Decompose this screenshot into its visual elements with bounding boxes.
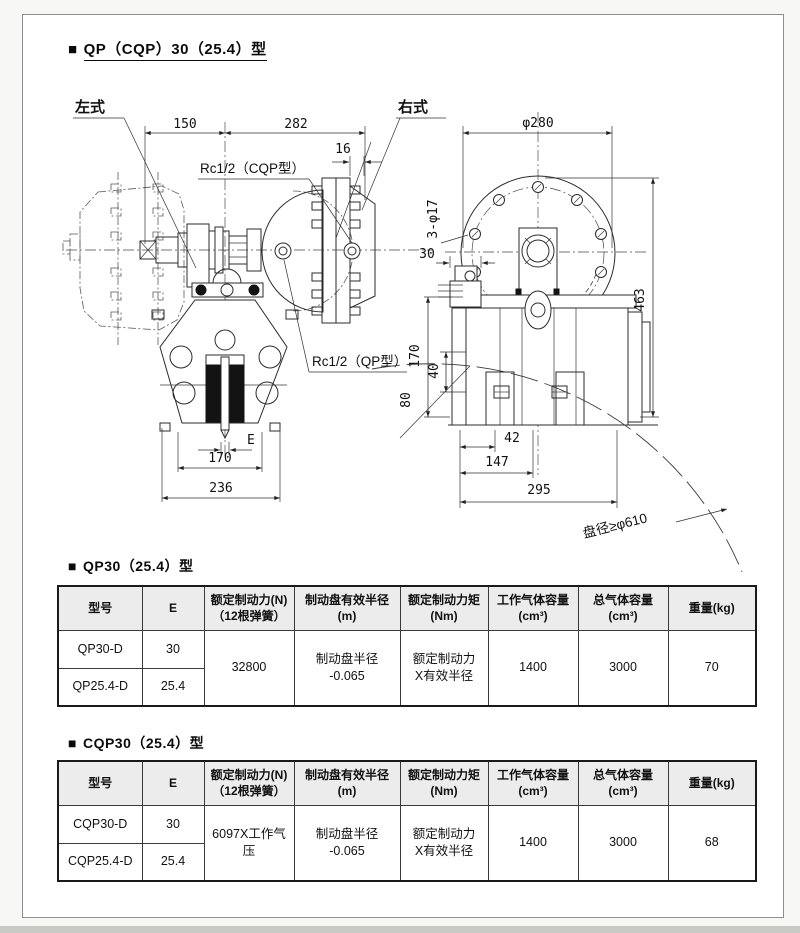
col-header-model: 型号 [58, 761, 142, 805]
dim-40-label: 40 [427, 363, 442, 379]
cell-e: 30 [142, 805, 204, 843]
col-header-rated-torque: 额定制动力矩 (Nm) [400, 761, 488, 805]
dim-e-label: E [247, 433, 255, 448]
right-view: φ280 3-φ17 30 170 40 80 463 [372, 112, 742, 572]
caliper-body [152, 269, 298, 438]
col-header-working-volume: 工作气体容量 (cm³) [488, 586, 578, 630]
cell-e: 25.4 [142, 668, 204, 706]
page-title: ■QP（CQP）30（25.4）型 [68, 38, 267, 59]
dim-236-label: 236 [209, 481, 232, 496]
cell-model: CQP30-D [58, 805, 142, 843]
left-view: 150 282 16 左式 右式 Rc1/2（CQP型） Rc1/2（QP型） [63, 98, 446, 502]
cell-effective-radius: 制动盘半径 -0.065 [294, 630, 400, 706]
cell-e: 25.4 [142, 843, 204, 881]
col-header-weight: 重量(kg) [668, 586, 756, 630]
dim-150-label: 150 [173, 117, 196, 132]
cell-e: 30 [142, 630, 204, 668]
col-header-rated-torque: 额定制动力矩 (Nm) [400, 586, 488, 630]
dim-42-label: 42 [504, 431, 520, 446]
dim-463-label: 463 [633, 288, 648, 311]
col-header-e: E [142, 761, 204, 805]
cqp-title-square-marker: ■ [68, 735, 77, 751]
dim-282-label: 282 [284, 117, 307, 132]
cell-rated-torque: 额定制动力 X有效半径 [400, 805, 488, 881]
table-row: CQP30-D 30 6097X工作气压 制动盘半径 -0.065 额定制动力 … [58, 805, 756, 843]
cell-total-volume: 3000 [578, 805, 668, 881]
air-chamber [262, 178, 375, 323]
dim-147-label: 147 [485, 455, 508, 470]
dim-295-label: 295 [527, 483, 550, 498]
cell-total-volume: 3000 [578, 630, 668, 706]
col-header-model: 型号 [58, 586, 142, 630]
title-square-marker: ■ [68, 41, 78, 58]
cell-working-volume: 1400 [488, 805, 578, 881]
side-bracket [438, 266, 481, 307]
caliper-front-body [448, 295, 658, 425]
qp-table-title: ■QP30（25.4）型 [68, 556, 194, 576]
col-header-weight: 重量(kg) [668, 761, 756, 805]
col-header-rated-force: 额定制动力(N) （12根弹簧） [204, 761, 294, 805]
right-view-type-label: 右式 [398, 98, 428, 116]
technical-drawing: 150 282 16 左式 右式 Rc1/2（CQP型） Rc1/2（QP型） [30, 85, 770, 575]
cell-working-volume: 1400 [488, 630, 578, 706]
cell-rated-force: 6097X工作气压 [204, 805, 294, 881]
cqp-spec-table: 型号 E 额定制动力(N) （12根弹簧） 制动盘有效半径 (m) 额定制动力矩… [57, 760, 757, 882]
col-header-e: E [142, 586, 204, 630]
dim-3-phi17-label: 3-φ17 [426, 199, 441, 238]
port-qp-label: Rc1/2（QP型） [312, 354, 407, 369]
cell-model: QP25.4-D [58, 668, 142, 706]
cqp-header-row: 型号 E 额定制动力(N) （12根弹簧） 制动盘有效半径 (m) 额定制动力矩… [58, 761, 756, 805]
qp-spec-table: 型号 E 额定制动力(N) （12根弹簧） 制动盘有效半径 (m) 额定制动力矩… [57, 585, 757, 707]
page-title-text: QP（CQP）30（25.4）型 [84, 41, 267, 61]
qp-title-text: QP30（25.4）型 [83, 558, 194, 574]
cell-weight: 68 [668, 805, 756, 881]
dim-phi280-label: φ280 [522, 116, 553, 131]
table-row: QP30-D 30 32800 制动盘半径 -0.065 额定制动力 X有效半径… [58, 630, 756, 668]
cqp-title-text: CQP30（25.4）型 [83, 735, 204, 751]
col-header-effective-radius: 制动盘有效半径 (m) [294, 761, 400, 805]
cqp-table-title: ■CQP30（25.4）型 [68, 733, 204, 753]
cell-rated-torque: 额定制动力 X有效半径 [400, 630, 488, 706]
dim-80-label: 80 [399, 392, 414, 408]
disc-diameter-note: 盘径≥φ610 [581, 509, 649, 540]
col-header-total-volume: 总气体容量 (cm³) [578, 761, 668, 805]
cell-effective-radius: 制动盘半径 -0.065 [294, 805, 400, 881]
dim-16-label: 16 [335, 142, 351, 157]
catalog-page: { "page": { "title_marker": "■", "title_… [0, 0, 800, 933]
cell-weight: 70 [668, 630, 756, 706]
left-view-dimensions: 150 282 16 左式 右式 Rc1/2（CQP型） Rc1/2（QP型） [73, 98, 446, 502]
cell-model: QP30-D [58, 630, 142, 668]
col-header-rated-force: 额定制动力(N) （12根弹簧） [204, 586, 294, 630]
cell-rated-force: 32800 [204, 630, 294, 706]
cell-model: CQP25.4-D [58, 843, 142, 881]
col-header-total-volume: 总气体容量 (cm³) [578, 586, 668, 630]
col-header-effective-radius: 制动盘有效半径 (m) [294, 586, 400, 630]
left-view-type-label: 左式 [74, 98, 105, 116]
qp-header-row: 型号 E 额定制动力(N) （12根弹簧） 制动盘有效半径 (m) 额定制动力矩… [58, 586, 756, 630]
col-header-working-volume: 工作气体容量 (cm³) [488, 761, 578, 805]
page-bottom-edge [0, 926, 800, 933]
dim-30-label: 30 [419, 247, 435, 262]
dim-170-left-label: 170 [208, 451, 231, 466]
port-cqp-label: Rc1/2（CQP型） [200, 161, 305, 176]
qp-title-square-marker: ■ [68, 558, 77, 574]
